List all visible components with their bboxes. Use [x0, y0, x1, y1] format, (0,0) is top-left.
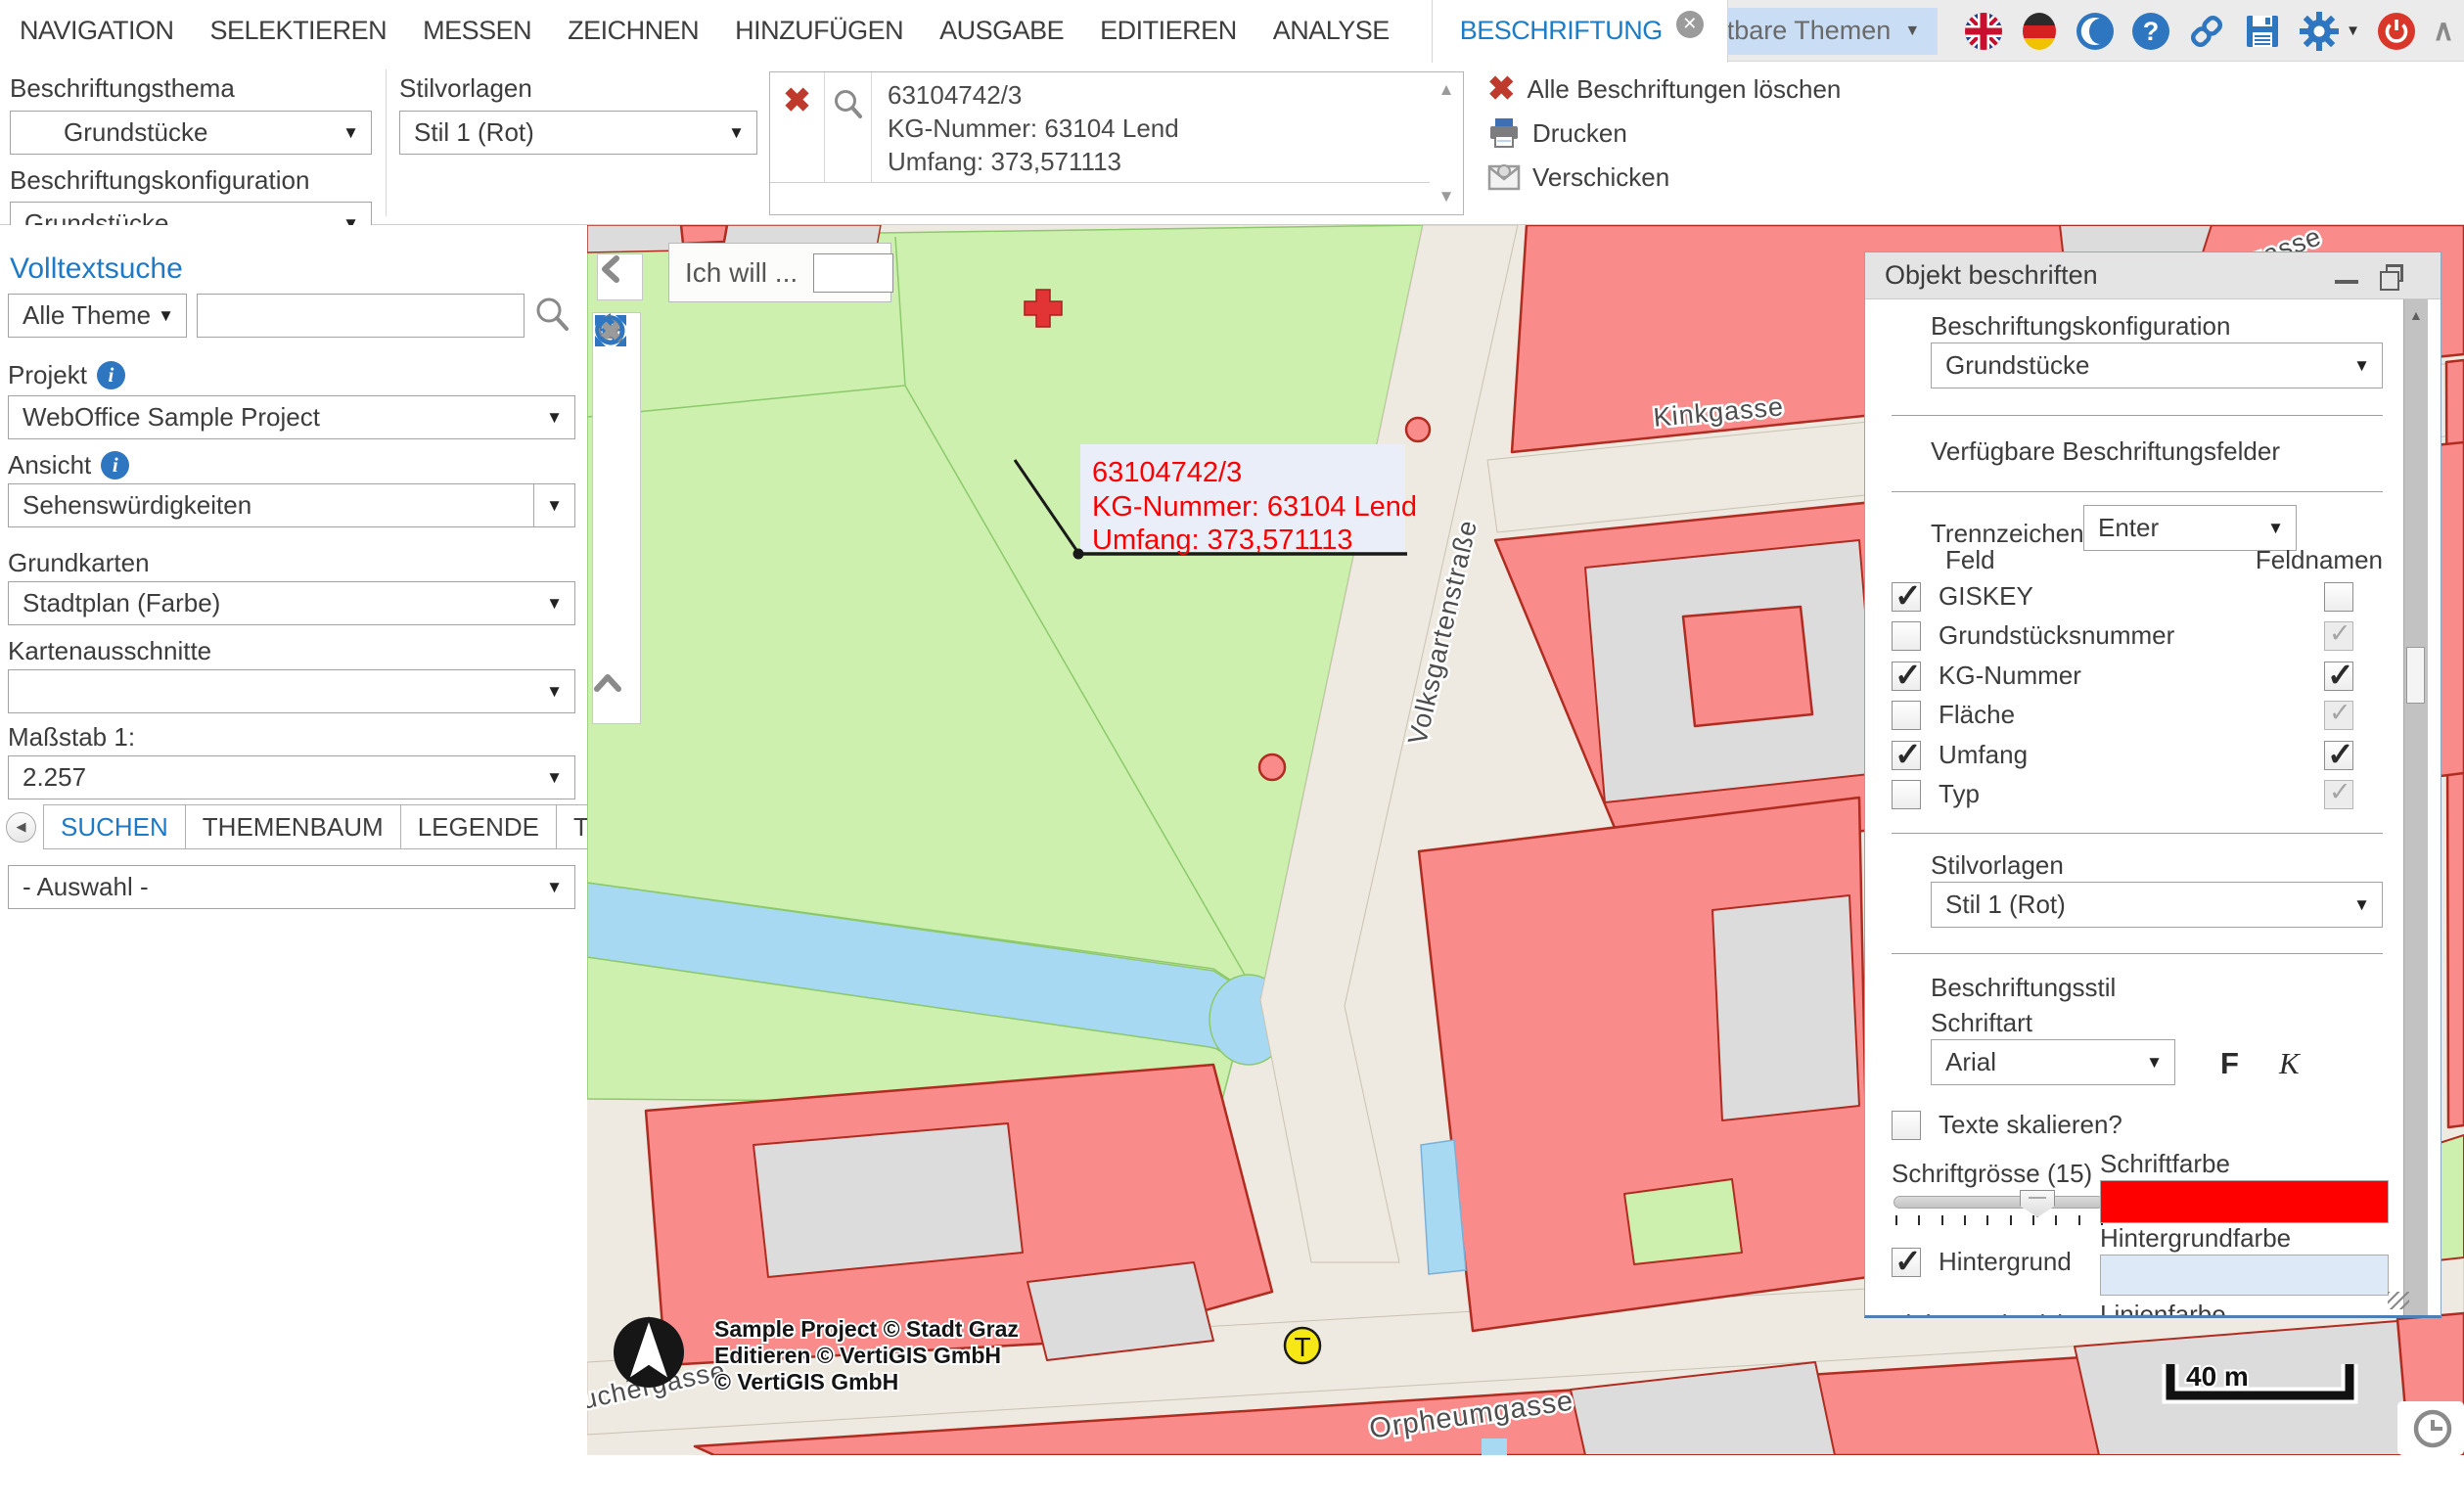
canal-crossing [1482, 1438, 1507, 1455]
delete-label-icon[interactable]: ✖ [783, 86, 811, 182]
gear-icon [2299, 11, 2340, 52]
trennzeichen-select[interactable]: Enter▼ [2083, 505, 2297, 551]
texte-skalieren-row: Texte skalieren? [1892, 1110, 2185, 1140]
projekt-label: Projekt [8, 360, 87, 390]
link-icon[interactable] [2187, 12, 2226, 51]
help-icon[interactable]: ? [2131, 12, 2170, 51]
result-line1: 63104742/3 [888, 78, 1430, 112]
tab-suchen[interactable]: SUCHEN [43, 804, 186, 849]
projekt-select[interactable]: WebOffice Sample Project▼ [8, 395, 575, 439]
field-row-grundstuecksnummer: Grundstücksnummer [1892, 620, 2389, 651]
panel-title-label: Objekt beschriften [1885, 260, 2098, 291]
beschriftung-toolbar: Beschriftungsthema Grundstücke▼ Beschrif… [0, 62, 2464, 225]
time-slider-icon[interactable] [2397, 1401, 2464, 1455]
schriftgroesse-label: Schriftgrösse (15) [1892, 1159, 2092, 1189]
feld-header: Feld [1945, 545, 1995, 575]
ich-will-widget[interactable]: Ich will ... [668, 243, 891, 302]
italic-button[interactable]: K [2279, 1046, 2300, 1081]
bold-button[interactable]: F [2220, 1046, 2239, 1081]
chevron-down-icon: ▼ [2346, 23, 2360, 39]
ansicht-select[interactable]: Sehenswürdigkeiten▼ [8, 483, 575, 527]
feld-checkbox[interactable] [1892, 701, 1921, 730]
feld-checkbox[interactable] [1892, 621, 1921, 651]
field-row-giskey: GISKEY [1892, 581, 2389, 612]
beschriftungsthema-label: Beschriftungsthema [10, 73, 372, 104]
volltextsuche-heading: Volltextsuche [10, 252, 183, 286]
menubar: NAVIGATION SELEKTIEREN MESSEN ZEICHNEN H… [0, 0, 2464, 62]
settings-dropdown[interactable]: ▼ [2299, 11, 2360, 52]
sidebar: Volltextsuche Alle Themen▼ Projekt i Web… [0, 225, 587, 1507]
scroll-down-icon[interactable]: ▼ [1438, 187, 1455, 206]
tab-beschriftung[interactable]: BESCHRIFTUNG ✕ [1432, 0, 1728, 63]
beschriftungsthema-select[interactable]: Grundstücke▼ [10, 111, 372, 155]
header-icons: i Sichtbare Themen ▼ [1603, 0, 2454, 62]
ich-will-label: Ich will ... [685, 257, 798, 289]
attribution-line1: Sample Project © Stadt Graz [714, 1316, 1019, 1342]
parcel-point-marker[interactable] [1259, 754, 1285, 780]
chevron-left-icon [605, 258, 616, 280]
grundkarten-select[interactable]: Stadtplan (Farbe)▼ [8, 581, 575, 625]
svg-text:?: ? [2143, 17, 2160, 46]
collapse-map-toolbar-button[interactable] [592, 672, 641, 724]
massstab-label: Maßstab 1: [8, 722, 135, 753]
feld-checkbox[interactable] [1892, 780, 1921, 809]
language-english-icon[interactable] [1964, 12, 2003, 51]
kartenausschnitte-label: Kartenausschnitte [8, 636, 211, 666]
save-icon[interactable] [2243, 12, 2282, 51]
feldname-checkbox[interactable] [2324, 582, 2353, 612]
feldnamen-header: Feldnamen [2256, 545, 2383, 575]
menu-zeichnen[interactable]: ZEICHNEN [568, 16, 699, 46]
result-line2: KG-Nummer: 63104 Lend [888, 112, 1430, 145]
attribution-line2: Editieren © VertiGIS GmbH [714, 1343, 1001, 1368]
menu-selektieren[interactable]: SELEKTIEREN [210, 16, 388, 46]
schriftart-label: Schriftart [1931, 1008, 2032, 1038]
scalebar-label: 40 m [2186, 1361, 2249, 1392]
delete-all-icon: ✖ [1487, 74, 1516, 104]
feldname-checkbox [2324, 780, 2353, 809]
close-tab-icon[interactable]: ✕ [1676, 11, 1704, 38]
field-row-typ: Typ [1892, 779, 2389, 809]
verfuegbare-heading: Verfügbare Beschriftungsfelder [1931, 436, 2280, 467]
linienfarbe-label: Linienfarbe [2100, 1300, 2226, 1315]
panel-titlebar[interactable]: Objekt beschriften [1865, 252, 2441, 299]
hintergrundfarbe-swatch[interactable] [2100, 1255, 2389, 1296]
field-row-kg-nummer: KG-Nummer [1892, 661, 2389, 691]
feldname-checkbox [2324, 621, 2353, 651]
feld-checkbox[interactable] [1892, 741, 1921, 770]
menu-analyse[interactable]: ANALYSE [1273, 16, 1390, 46]
linienstaerke-label: Linienstärke (1) [1892, 1309, 2067, 1315]
center-map-button[interactable] [593, 583, 640, 628]
feldname-checkbox[interactable] [2324, 741, 2353, 770]
logout-power-icon[interactable] [2377, 12, 2416, 51]
full-extent-button[interactable] [593, 628, 640, 673]
schriftgroesse-slider[interactable] [1894, 1196, 2104, 1209]
transit-t-marker: T [1285, 1328, 1320, 1363]
slider-thumb[interactable] [2020, 1190, 2055, 1217]
schriftart-select[interactable]: Arial▼ [1931, 1039, 2175, 1085]
menu-editieren[interactable]: EDITIEREN [1100, 16, 1237, 46]
menu-ausgabe[interactable]: AUSGABE [939, 16, 1064, 46]
schriftfarbe-label: Schriftfarbe [2100, 1149, 2230, 1179]
envelope-icon [1487, 162, 1521, 192]
scrollbar-thumb[interactable] [2406, 647, 2425, 704]
send-button[interactable]: Verschicken [1487, 158, 1841, 197]
panel-konfig-label: Beschriftungskonfiguration [1931, 311, 2230, 342]
stilvorlagen-label: Stilvorlagen [399, 73, 757, 104]
globe-button[interactable] [593, 358, 640, 403]
restore-icon[interactable] [2386, 264, 2403, 282]
massstab-select[interactable]: 2.257▼ [8, 755, 575, 799]
tabs-scroll-left-icon[interactable]: ◀ [6, 812, 36, 843]
callout-line3: Umfang: 373,571113 [1092, 525, 1353, 556]
collapse-header-icon[interactable]: ∧ [2433, 14, 2454, 48]
field-row-flaeche: Fläche [1892, 700, 2389, 730]
hintergrund-row: Hintergrund [1892, 1247, 2087, 1277]
parcel-point-marker[interactable] [1406, 418, 1430, 441]
panel-scrollbar[interactable]: ▲ [2403, 299, 2428, 1315]
feld-checkbox[interactable] [1892, 582, 1921, 612]
beschriftungsstil-heading: Beschriftungsstil [1931, 973, 2116, 1003]
scroll-up-icon[interactable]: ▲ [1438, 80, 1455, 100]
language-german-icon[interactable] [2020, 12, 2059, 51]
label-result-row[interactable]: ✖ 63104742/3 KG-Nummer: 63104 Lend Umfan… [770, 72, 1430, 183]
label-result-list: ✖ 63104742/3 KG-Nummer: 63104 Lend Umfan… [769, 71, 1464, 215]
map-toolbar [592, 312, 641, 674]
tab-themenbaum[interactable]: THEMENBAUM [185, 804, 401, 849]
search-icon[interactable] [532, 296, 571, 335]
panel-stilvorlagen-label: Stilvorlagen [1931, 850, 2064, 881]
feldname-checkbox [2324, 701, 2353, 730]
zoom-to-label-icon[interactable] [832, 88, 865, 121]
menu-messen[interactable]: MESSEN [423, 16, 531, 46]
hintergrund-checkbox[interactable] [1892, 1248, 1921, 1277]
panel-stilvorlagen-select[interactable]: Stil 1 (Rot)▼ [1931, 882, 2383, 928]
feld-checkbox[interactable] [1892, 662, 1921, 691]
zoom-out-button[interactable] [593, 448, 640, 493]
field-row-umfang: Umfang [1892, 740, 2389, 770]
beschriftungskonfiguration-label: Beschriftungskonfiguration [10, 165, 372, 196]
callout-line1: 63104742/3 [1092, 457, 1242, 488]
menu-hinzufuegen[interactable]: HINZUFÜGEN [735, 16, 903, 46]
objekt-beschriften-panel: Objekt beschriften ▲ Beschriftungskonfig… [1864, 251, 2441, 1318]
collapse-sidebar-button[interactable] [597, 253, 643, 300]
ansicht-info-icon[interactable]: i [101, 451, 129, 479]
ich-will-input[interactable] [813, 253, 893, 293]
previous-extent-button[interactable] [593, 493, 640, 538]
kartenausschnitte-select[interactable]: ▼ [8, 669, 575, 713]
minimize-icon[interactable] [2335, 280, 2358, 284]
attribution-line3: © VertiGIS GmbH [714, 1369, 898, 1394]
fulltext-search-input[interactable] [197, 294, 525, 338]
zoom-in-button[interactable] [593, 403, 640, 448]
texte-skalieren-checkbox[interactable] [1892, 1111, 1921, 1140]
panel-konfig-select[interactable]: Grundstücke▼ [1931, 342, 2383, 388]
menu-items: NAVIGATION SELEKTIEREN MESSEN ZEICHNEN H… [0, 0, 1728, 62]
feldname-checkbox[interactable] [2324, 662, 2353, 691]
stilvorlagen-select[interactable]: Stil 1 (Rot)▼ [399, 111, 757, 155]
scroll-up-icon[interactable]: ▲ [2409, 307, 2423, 323]
moon-crescent-icon[interactable] [2076, 12, 2115, 51]
printer-icon [1487, 117, 1521, 149]
auswahl-select[interactable]: - Auswahl -▼ [8, 865, 575, 909]
menu-navigation[interactable]: NAVIGATION [20, 16, 174, 46]
list-scrollbar[interactable]: ▲ ▼ [1430, 72, 1463, 214]
next-extent-button[interactable] [593, 538, 640, 583]
hintergrundfarbe-label: Hintergrundfarbe [2100, 1223, 2291, 1254]
search-scope-select[interactable]: Alle Themen▼ [8, 294, 187, 338]
chevron-down-icon: ▼ [1904, 23, 1920, 40]
print-button[interactable]: Drucken [1487, 114, 1841, 153]
result-line3: Umfang: 373,571113 [888, 145, 1430, 178]
panel-resize-grip[interactable] [2388, 1292, 2409, 1309]
projekt-info-icon[interactable]: i [97, 361, 125, 389]
tab-legende[interactable]: LEGENDE [400, 804, 557, 849]
callout-line2: KG-Nummer: 63104 Lend [1092, 491, 1417, 523]
chevron-up-icon [597, 677, 618, 689]
north-arrow-icon [614, 1317, 684, 1388]
grundkarten-label: Grundkarten [8, 548, 150, 578]
ansicht-label: Ansicht [8, 450, 91, 480]
svg-text:T: T [1294, 1332, 1310, 1362]
schriftfarbe-swatch[interactable] [2100, 1180, 2389, 1223]
delete-all-labels-button[interactable]: ✖ Alle Beschriftungen löschen [1487, 69, 1841, 109]
